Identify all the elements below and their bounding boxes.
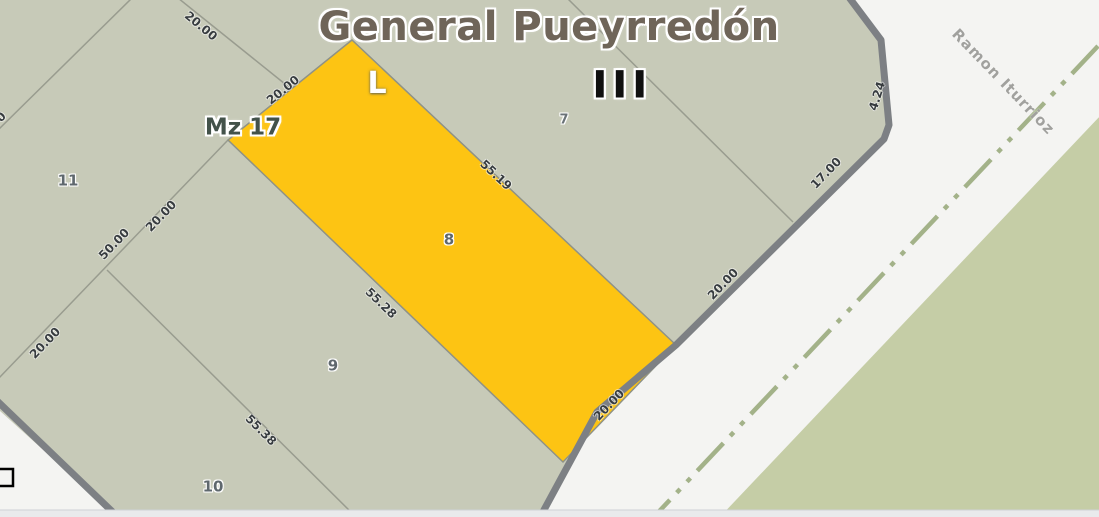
bottom-strip	[0, 510, 1099, 517]
map-viewport: General Pueyrredón L III Mz 17 7 8 9 10 …	[0, 0, 1099, 517]
cadastral-map-canvas	[0, 0, 1099, 517]
